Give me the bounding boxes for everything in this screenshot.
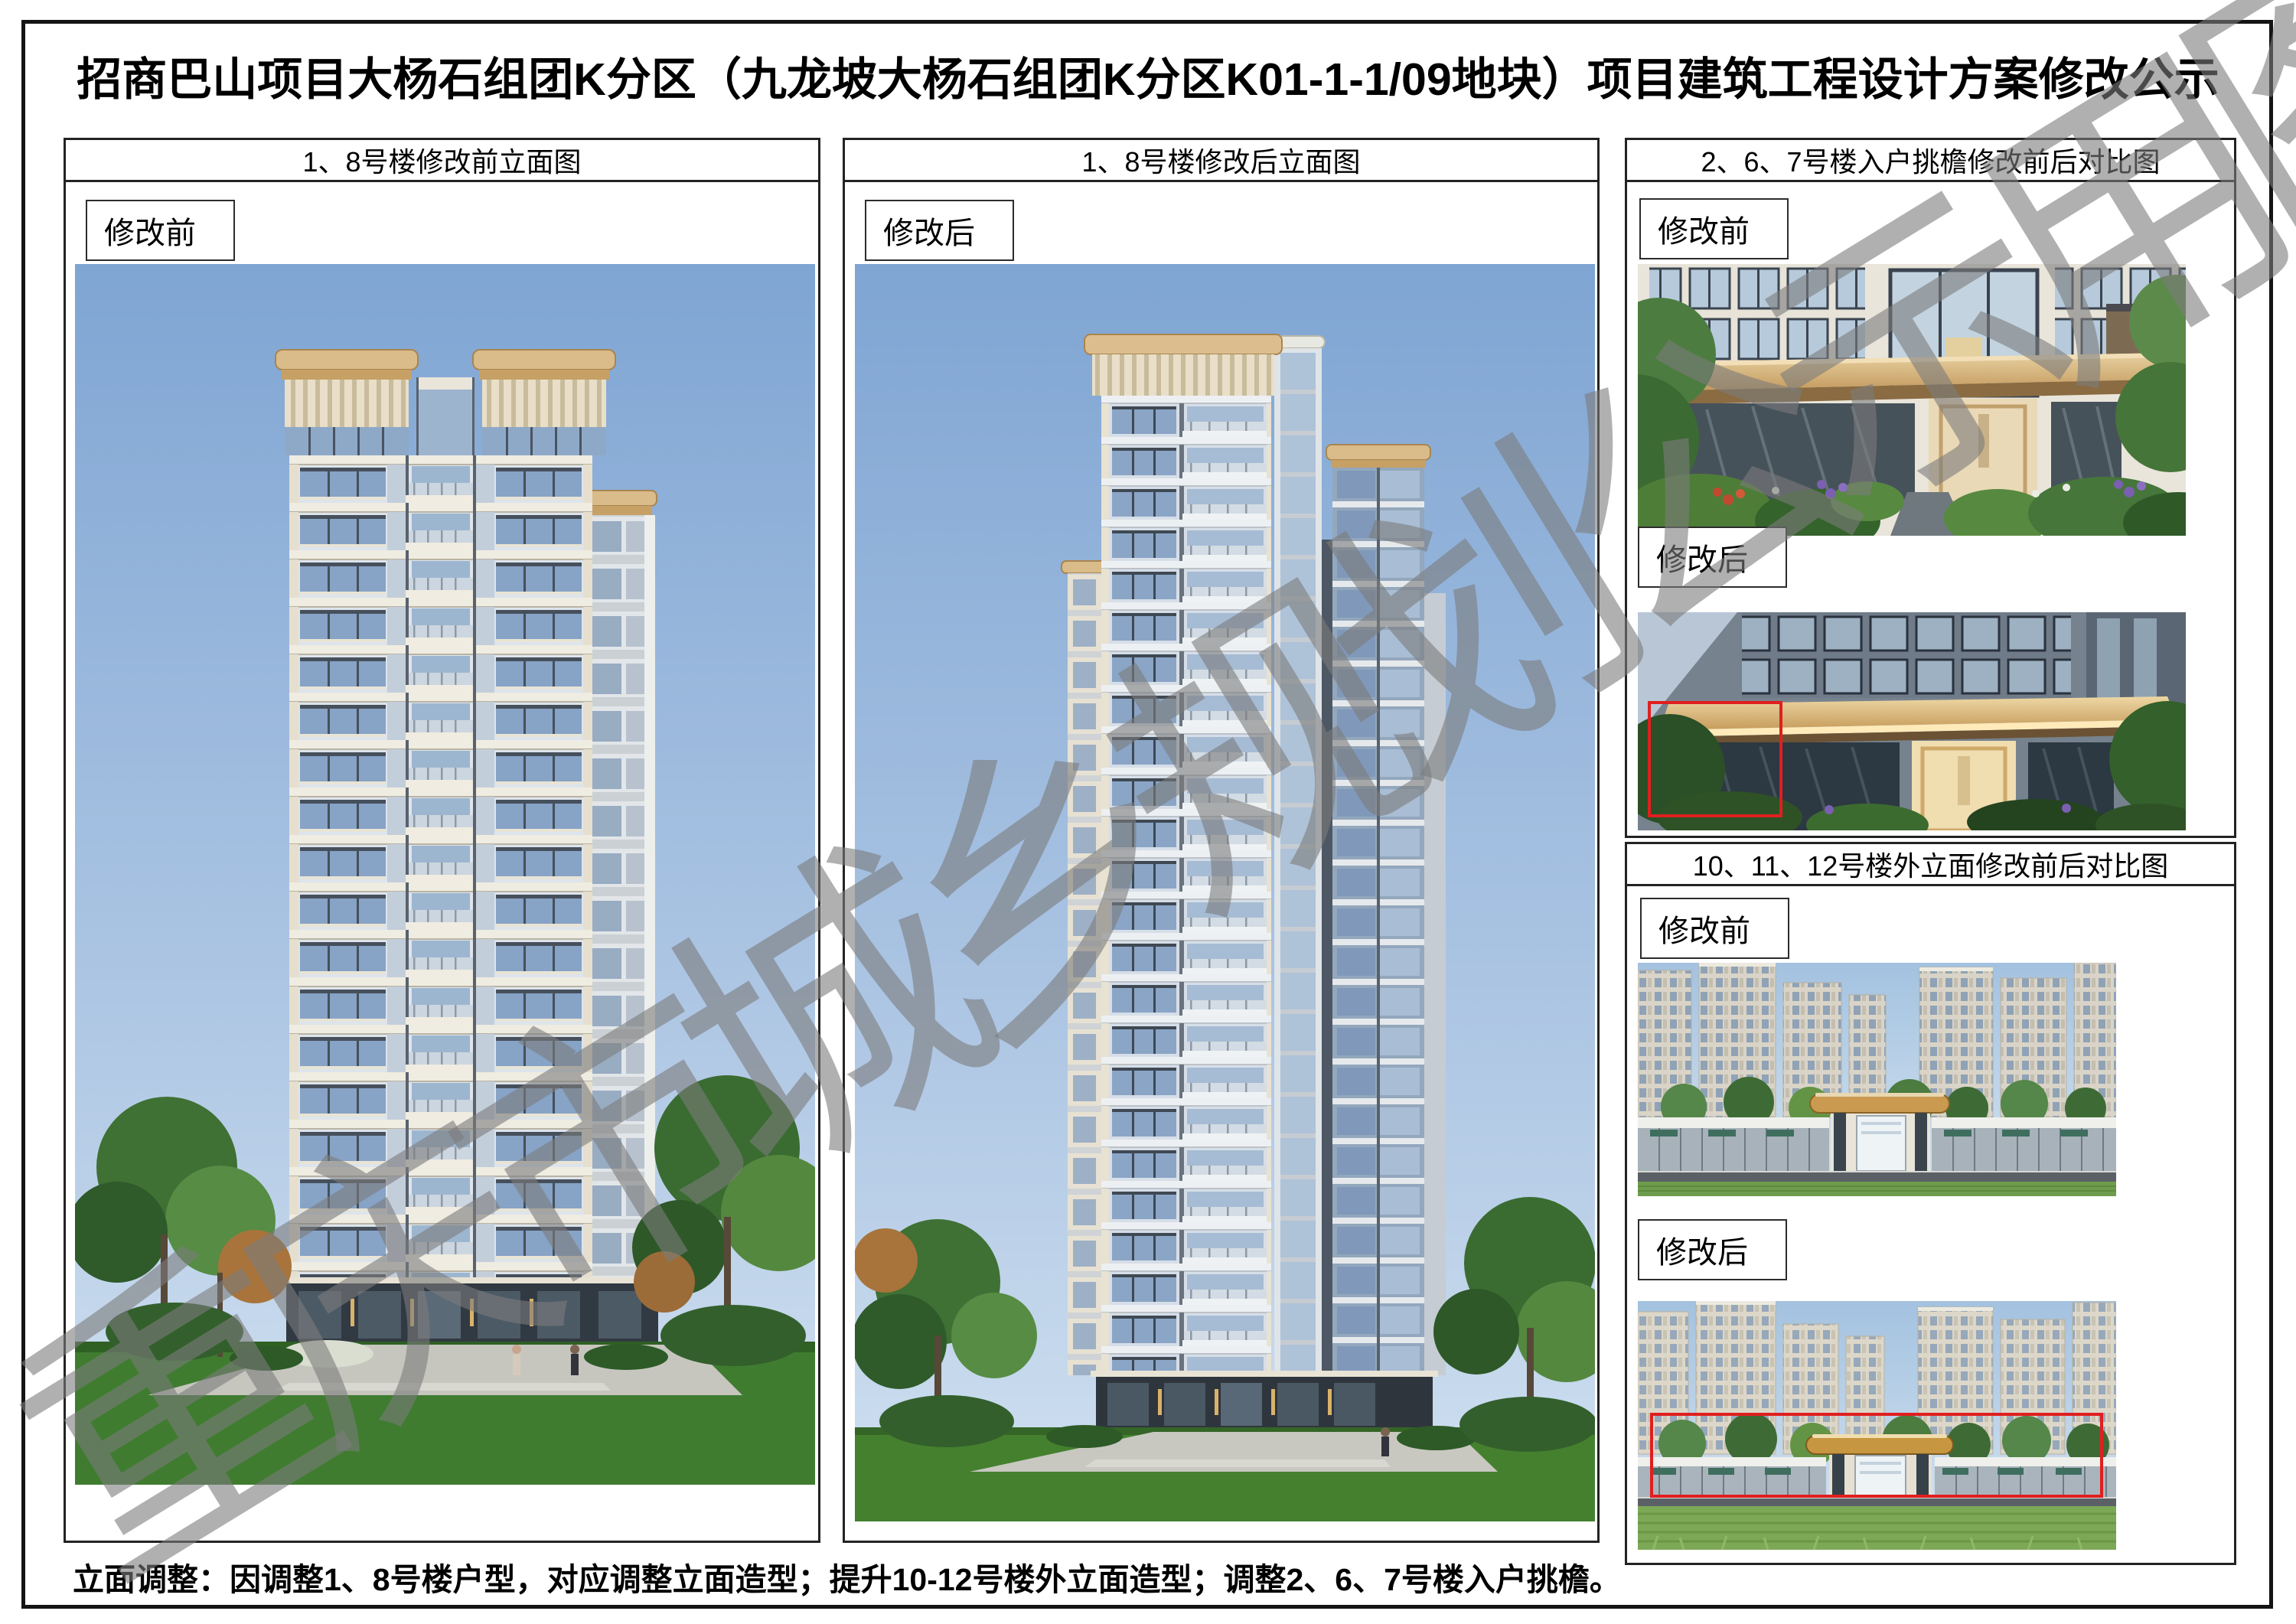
canopy-before-render xyxy=(1638,264,2186,536)
revision-note: 立面调整：因调整1、8号楼户型，对应调整立面造型；提升10-12号楼外立面造型；… xyxy=(73,1554,1621,1600)
panel-elevation-after: 1、8号楼修改后立面图 修改后 xyxy=(843,138,1600,1543)
facade-after-image xyxy=(1638,1301,2116,1550)
canopy-after-tag: 修改后 xyxy=(1638,527,1787,588)
panel-facade-compare: 10、11、12号楼外立面修改前后对比图 修改前 xyxy=(1625,842,2236,1565)
canopy-after-image xyxy=(1638,612,2186,830)
elevation-after-render xyxy=(855,264,1595,1521)
notice-poster: 招商巴山项目大杨石组团K分区（九龙坡大杨石组团K分区K01-1-1/09地块）项… xyxy=(0,0,2296,1624)
facade-before-tag: 修改前 xyxy=(1640,898,1789,959)
panel-canopy-compare: 2、6、7号楼入户挑檐修改前后对比图 修改前 xyxy=(1625,138,2236,838)
page-title: 招商巴山项目大杨石组团K分区（九龙坡大杨石组团K分区K01-1-1/09地块）项… xyxy=(46,43,2250,108)
canopy-after-render xyxy=(1638,612,2186,830)
panel-canopy-compare-header: 2、6、7号楼入户挑檐修改前后对比图 xyxy=(1627,140,2234,182)
elevation-before-image xyxy=(75,264,815,1485)
panel-elevation-after-header: 1、8号楼修改后立面图 xyxy=(845,140,1597,182)
facade-before-image xyxy=(1638,963,2116,1196)
before-tag: 修改前 xyxy=(86,200,235,261)
panel-elevation-before-header: 1、8号楼修改前立面图 xyxy=(66,140,818,182)
canopy-before-image xyxy=(1638,264,2186,536)
elevation-after-image xyxy=(855,264,1595,1521)
facade-after-render xyxy=(1638,1301,2116,1550)
panel-elevation-before: 1、8号楼修改前立面图 修改前 xyxy=(64,138,820,1543)
facade-after-tag: 修改后 xyxy=(1638,1219,1787,1280)
panel-facade-compare-header: 10、11、12号楼外立面修改前后对比图 xyxy=(1627,844,2234,886)
after-tag: 修改后 xyxy=(865,200,1014,261)
facade-before-render xyxy=(1638,963,2116,1196)
canopy-before-tag: 修改前 xyxy=(1639,198,1789,259)
elevation-before-render xyxy=(75,264,815,1485)
